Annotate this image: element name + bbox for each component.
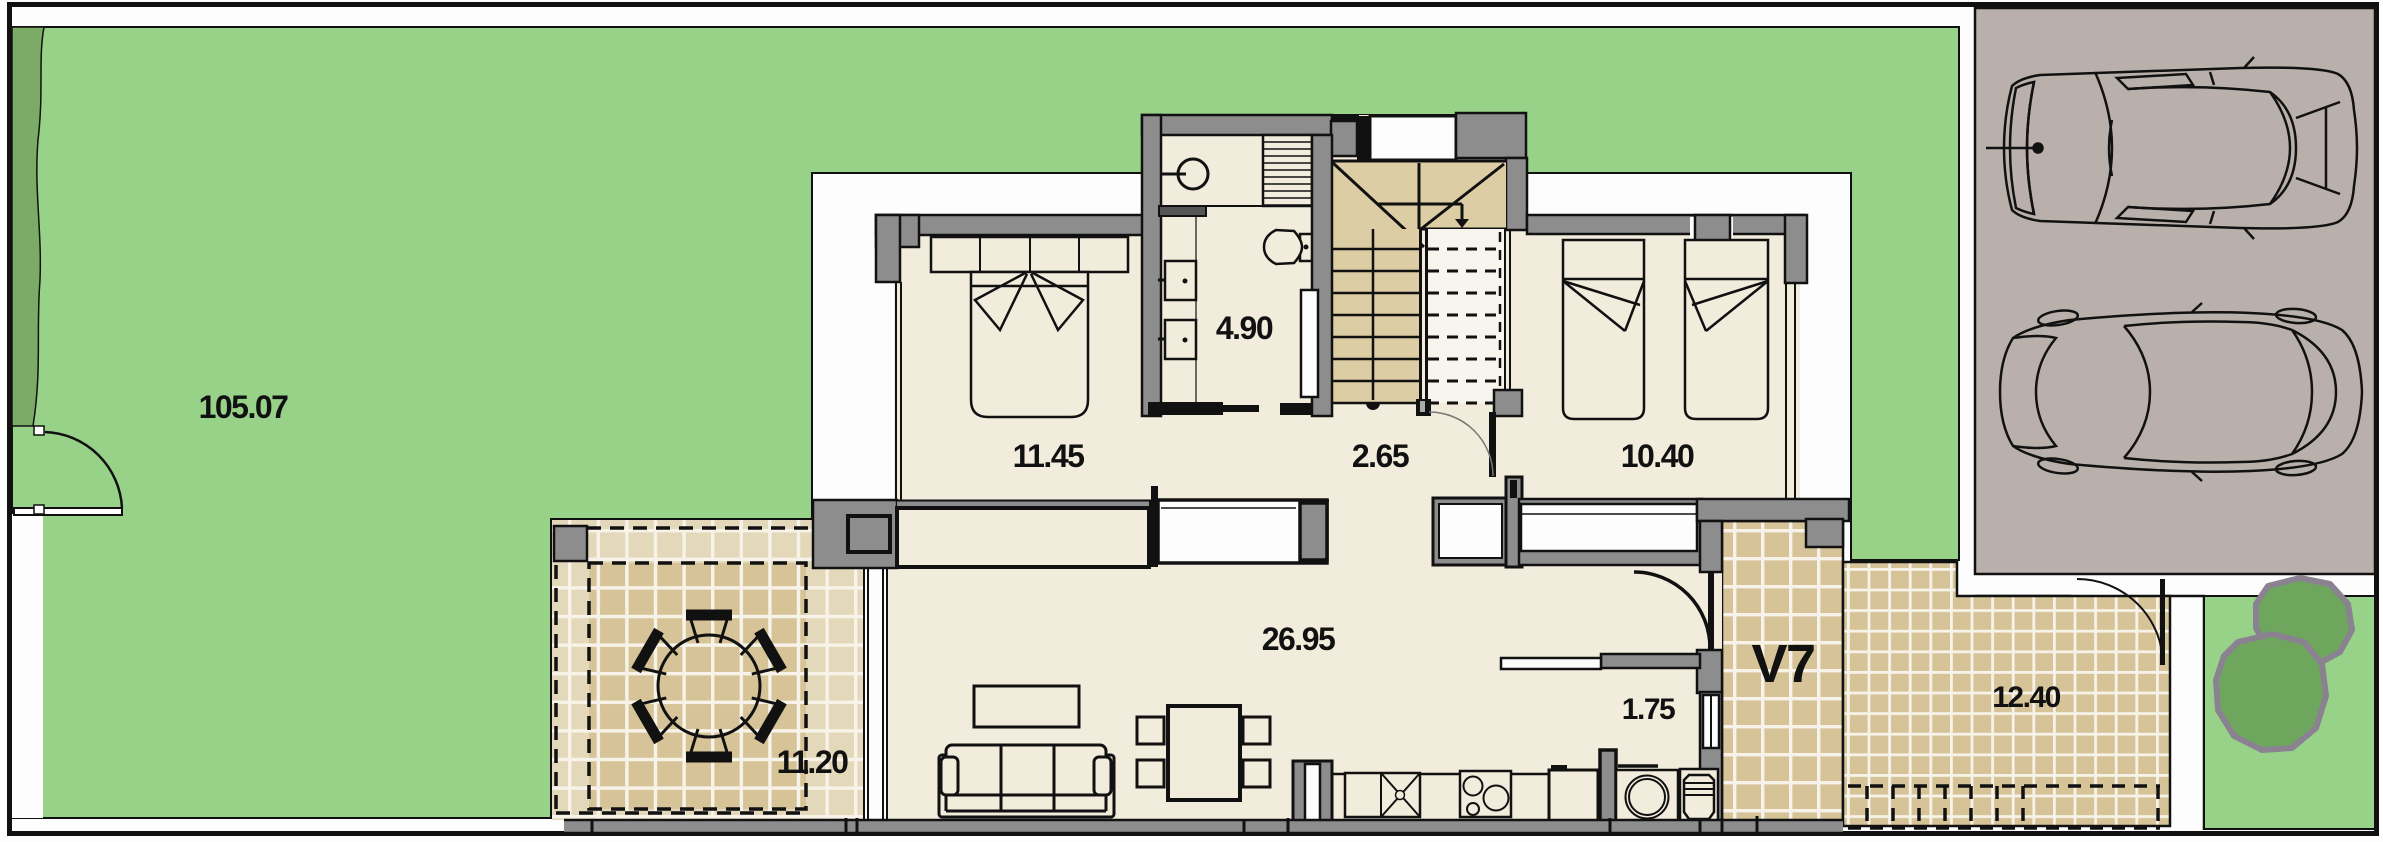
svg-text:V7: V7: [1751, 634, 1814, 694]
svg-text:26.95: 26.95: [1262, 621, 1335, 657]
svg-text:1.75: 1.75: [1622, 693, 1675, 726]
svg-text:11.20: 11.20: [777, 744, 849, 780]
svg-text:4.90: 4.90: [1216, 310, 1273, 346]
svg-text:105.07: 105.07: [199, 389, 289, 425]
svg-text:11.45: 11.45: [1013, 438, 1085, 474]
svg-text:12.40: 12.40: [1992, 681, 2060, 714]
svg-text:2.65: 2.65: [1352, 438, 1409, 474]
svg-text:10.40: 10.40: [1621, 438, 1694, 474]
